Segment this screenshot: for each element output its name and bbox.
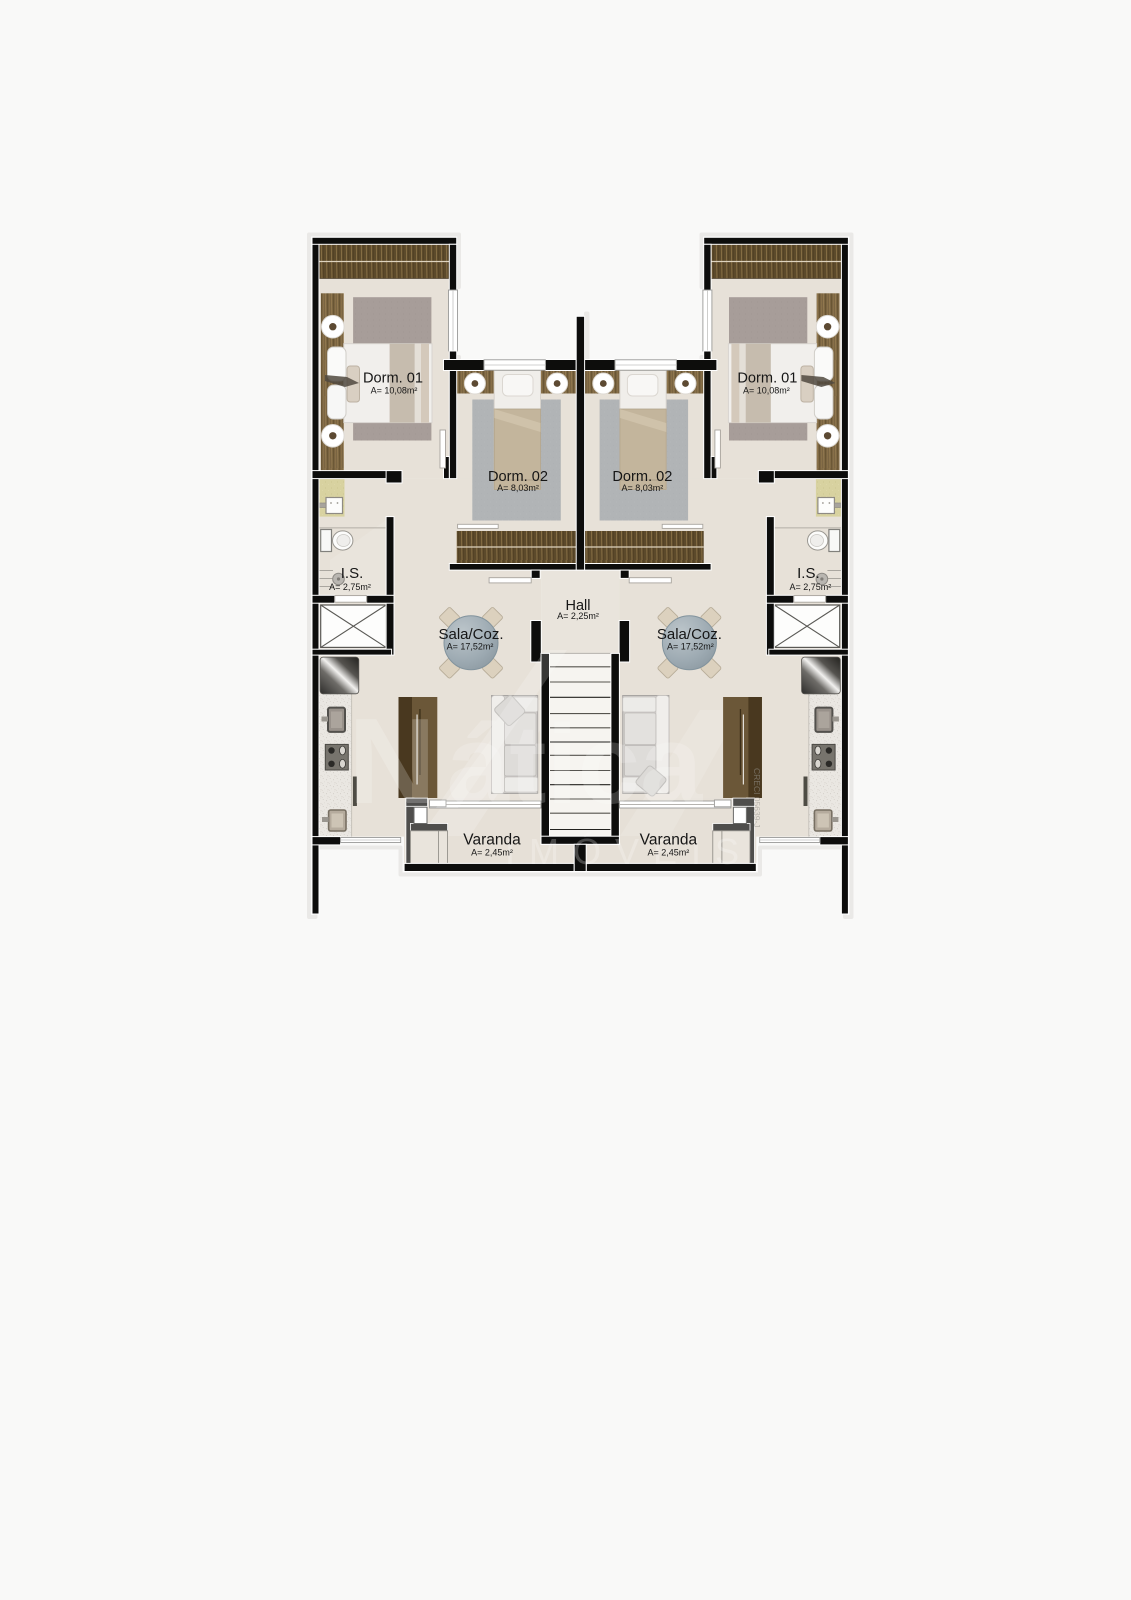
svg-text:N: N [348, 693, 436, 829]
svg-text:A= 10,08m²: A= 10,08m² [371, 386, 418, 396]
svg-text:Sala/Coz.: Sala/Coz. [438, 626, 503, 643]
svg-text:A= 2,75m²: A= 2,75m² [329, 582, 371, 592]
svg-text:A= 8,03m²: A= 8,03m² [622, 483, 664, 493]
svg-text:Varanda: Varanda [463, 832, 521, 849]
svg-text:A= 8,03m²: A= 8,03m² [497, 483, 539, 493]
svg-text:A= 2,45m²: A= 2,45m² [471, 847, 513, 857]
svg-text:A= 2,25m²: A= 2,25m² [557, 611, 599, 621]
svg-text:I.S.: I.S. [797, 565, 820, 582]
svg-text:IMÓVEIS: IMÓVEIS [505, 831, 753, 872]
svg-text:I.S.: I.S. [341, 565, 364, 582]
svg-text:Varanda: Varanda [640, 832, 698, 849]
svg-text:CRECI 05639-J: CRECI 05639-J [752, 768, 762, 828]
svg-text:ática: ática [447, 702, 703, 827]
svg-text:Dorm. 01: Dorm. 01 [363, 370, 423, 386]
svg-text:A= 2,75m²: A= 2,75m² [790, 582, 832, 592]
svg-text:A= 10,08m²: A= 10,08m² [743, 386, 790, 396]
svg-text:Sala/Coz.: Sala/Coz. [657, 626, 722, 643]
svg-text:Dorm. 01: Dorm. 01 [737, 370, 797, 386]
svg-text:A= 17,52m²: A= 17,52m² [447, 641, 494, 651]
svg-text:A= 17,52m²: A= 17,52m² [667, 641, 714, 651]
svg-text:A= 2,45m²: A= 2,45m² [648, 847, 690, 857]
